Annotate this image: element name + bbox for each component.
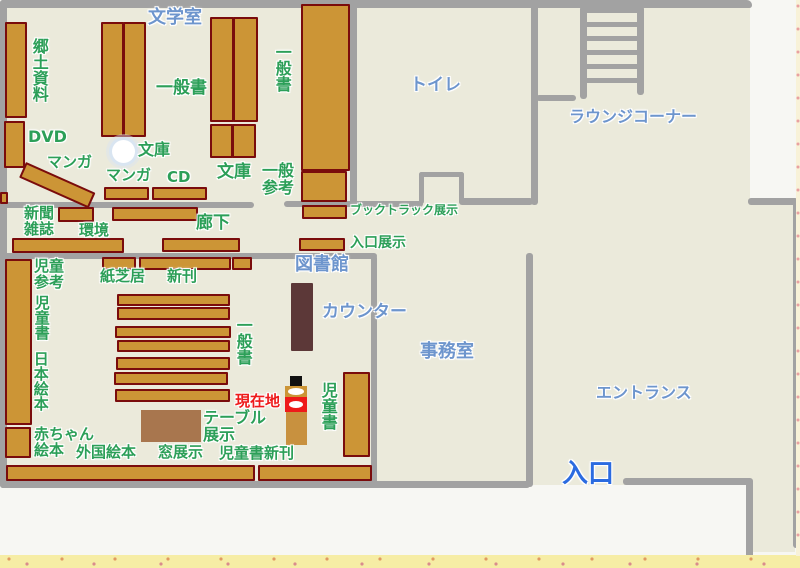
label-kamishibai: 紙芝居 xyxy=(100,269,145,285)
shelf-children-tall xyxy=(343,372,370,457)
label-jimushitsu: 事務室 xyxy=(420,343,474,362)
kiosk-base xyxy=(286,412,307,445)
label-entrance-hall: エントランス xyxy=(596,385,692,402)
label-bunko-a: 文庫 xyxy=(138,142,170,159)
shelf-newspaper xyxy=(58,207,94,222)
shelf-row5 xyxy=(116,357,230,370)
wall-office-left xyxy=(371,255,377,487)
label-kankyo: 環境 xyxy=(79,223,109,239)
shelf-dvd xyxy=(4,121,25,168)
shelf-booktruck-display xyxy=(302,205,347,219)
display-table xyxy=(141,410,201,442)
shelf-entrance-display xyxy=(299,238,345,251)
shelf-general-pair2-right xyxy=(233,17,258,122)
stairs-step xyxy=(580,8,644,13)
stairs-step xyxy=(580,78,644,83)
label-bunko-b: 文庫 xyxy=(217,164,251,182)
shelf-row2 xyxy=(117,307,230,320)
label-iriguchi-tenji: 入口展示 xyxy=(350,236,406,251)
label-dvd: DVD xyxy=(28,129,67,146)
shelf-bunko-right xyxy=(232,124,256,158)
label-ippan-sanko: 一般参考 xyxy=(262,163,298,197)
marker-oval xyxy=(289,401,303,408)
label-ippansho-a: 一般書 xyxy=(156,80,207,98)
stairs-step xyxy=(580,36,644,41)
label-booktruck-tenji: ブックトラック展示 xyxy=(350,204,458,217)
shelf-general-tall xyxy=(301,4,350,171)
label-manga-b: マンガ xyxy=(106,168,151,184)
label-entrance-door: 入口 xyxy=(562,461,614,488)
stairs-step xyxy=(580,64,644,69)
shelf-environment xyxy=(112,207,198,221)
wall-right-step xyxy=(748,198,798,205)
label-ippansho-b: 一般書 xyxy=(273,44,290,92)
wall-lounge-stub xyxy=(536,95,576,101)
shelf-bunko-left xyxy=(210,124,233,158)
label-shinbun-zasshi: 新聞雑誌 xyxy=(24,206,58,238)
wall-bottom xyxy=(0,481,530,488)
label-jidosho-b: 児童書 xyxy=(319,382,336,430)
label-bungakushitsu: 文学室 xyxy=(148,9,202,28)
label-jidosho-a: 児童書 xyxy=(33,295,49,340)
shelf-manga xyxy=(104,187,149,200)
stairs-step xyxy=(580,50,644,55)
shelf-row1 xyxy=(117,294,230,306)
label-nihon-ehon: 日本絵本 xyxy=(32,351,48,411)
floor-bottom-right xyxy=(753,485,795,552)
shelf-children-new xyxy=(258,465,372,481)
wall-office-right xyxy=(526,253,533,487)
shelf-row7 xyxy=(115,389,230,402)
label-counter: カウンター xyxy=(322,304,407,322)
wall-literature-right xyxy=(350,5,357,205)
label-lounge: ラウンジコーナー xyxy=(569,109,697,126)
shelf-row4 xyxy=(117,340,230,352)
wall-toilet-right xyxy=(531,5,538,205)
wall-entrance-corner xyxy=(746,480,753,566)
paper-border-bottom xyxy=(0,555,800,568)
shelf-cd xyxy=(152,187,207,200)
label-toilet: トイレ xyxy=(410,77,461,95)
shelf-kyodo-shiryo xyxy=(5,22,27,118)
floor-map: 郷土資料 DVD マンガ マンガ CD 文庫 一般書 一般書 文庫 一般参考 ブ… xyxy=(0,0,800,568)
label-kyodo-shiryo: 郷土資料 xyxy=(30,38,47,102)
stairs-step xyxy=(580,22,644,27)
shelf-baby-books xyxy=(5,427,31,458)
label-jidosho-shinkan: 児童書新刊 xyxy=(219,446,294,462)
counter-desk xyxy=(291,283,313,351)
shelf-shinkan-end xyxy=(232,257,252,270)
pillar-circle xyxy=(112,140,135,163)
label-toshokan: 図書館 xyxy=(295,256,349,275)
kiosk-top-oval xyxy=(288,388,304,395)
shelf-general-pair2-left xyxy=(210,17,234,122)
label-shinkan: 新刊 xyxy=(167,269,197,285)
label-manga-a: マンガ xyxy=(47,155,92,171)
wall-toilet-bottom xyxy=(459,198,533,205)
label-cd: CD xyxy=(167,170,190,186)
paper-border-right xyxy=(796,0,800,556)
label-gaikoku-ehon: 外国絵本 xyxy=(76,445,136,461)
shelf-general-reference xyxy=(301,171,347,202)
label-table-tenji: テーブル展示 xyxy=(203,410,273,444)
label-genzaichi: 現在地 xyxy=(235,394,280,410)
shelf-corridor-right xyxy=(162,238,240,252)
kiosk-screen xyxy=(290,376,302,386)
label-rouka: 廊下 xyxy=(196,215,230,233)
shelf-general-pair1-left xyxy=(101,22,124,137)
shelf-row3 xyxy=(115,326,231,338)
shelf-corridor-left xyxy=(12,238,124,253)
shelf-row6 xyxy=(114,372,228,385)
label-jido-sanko: 児童参考 xyxy=(34,259,68,291)
shelf-window-display xyxy=(6,465,255,481)
shelf-general-pair1-right xyxy=(123,22,146,137)
wall-alcove-top xyxy=(419,172,464,177)
label-ippansho-c: 一般書 xyxy=(234,317,251,365)
shelf-stub-left xyxy=(0,192,8,204)
shelf-children-left-tall xyxy=(5,259,32,425)
label-mado-tenji: 窓展示 xyxy=(158,445,203,461)
wall-entrance-bottom xyxy=(623,478,753,485)
